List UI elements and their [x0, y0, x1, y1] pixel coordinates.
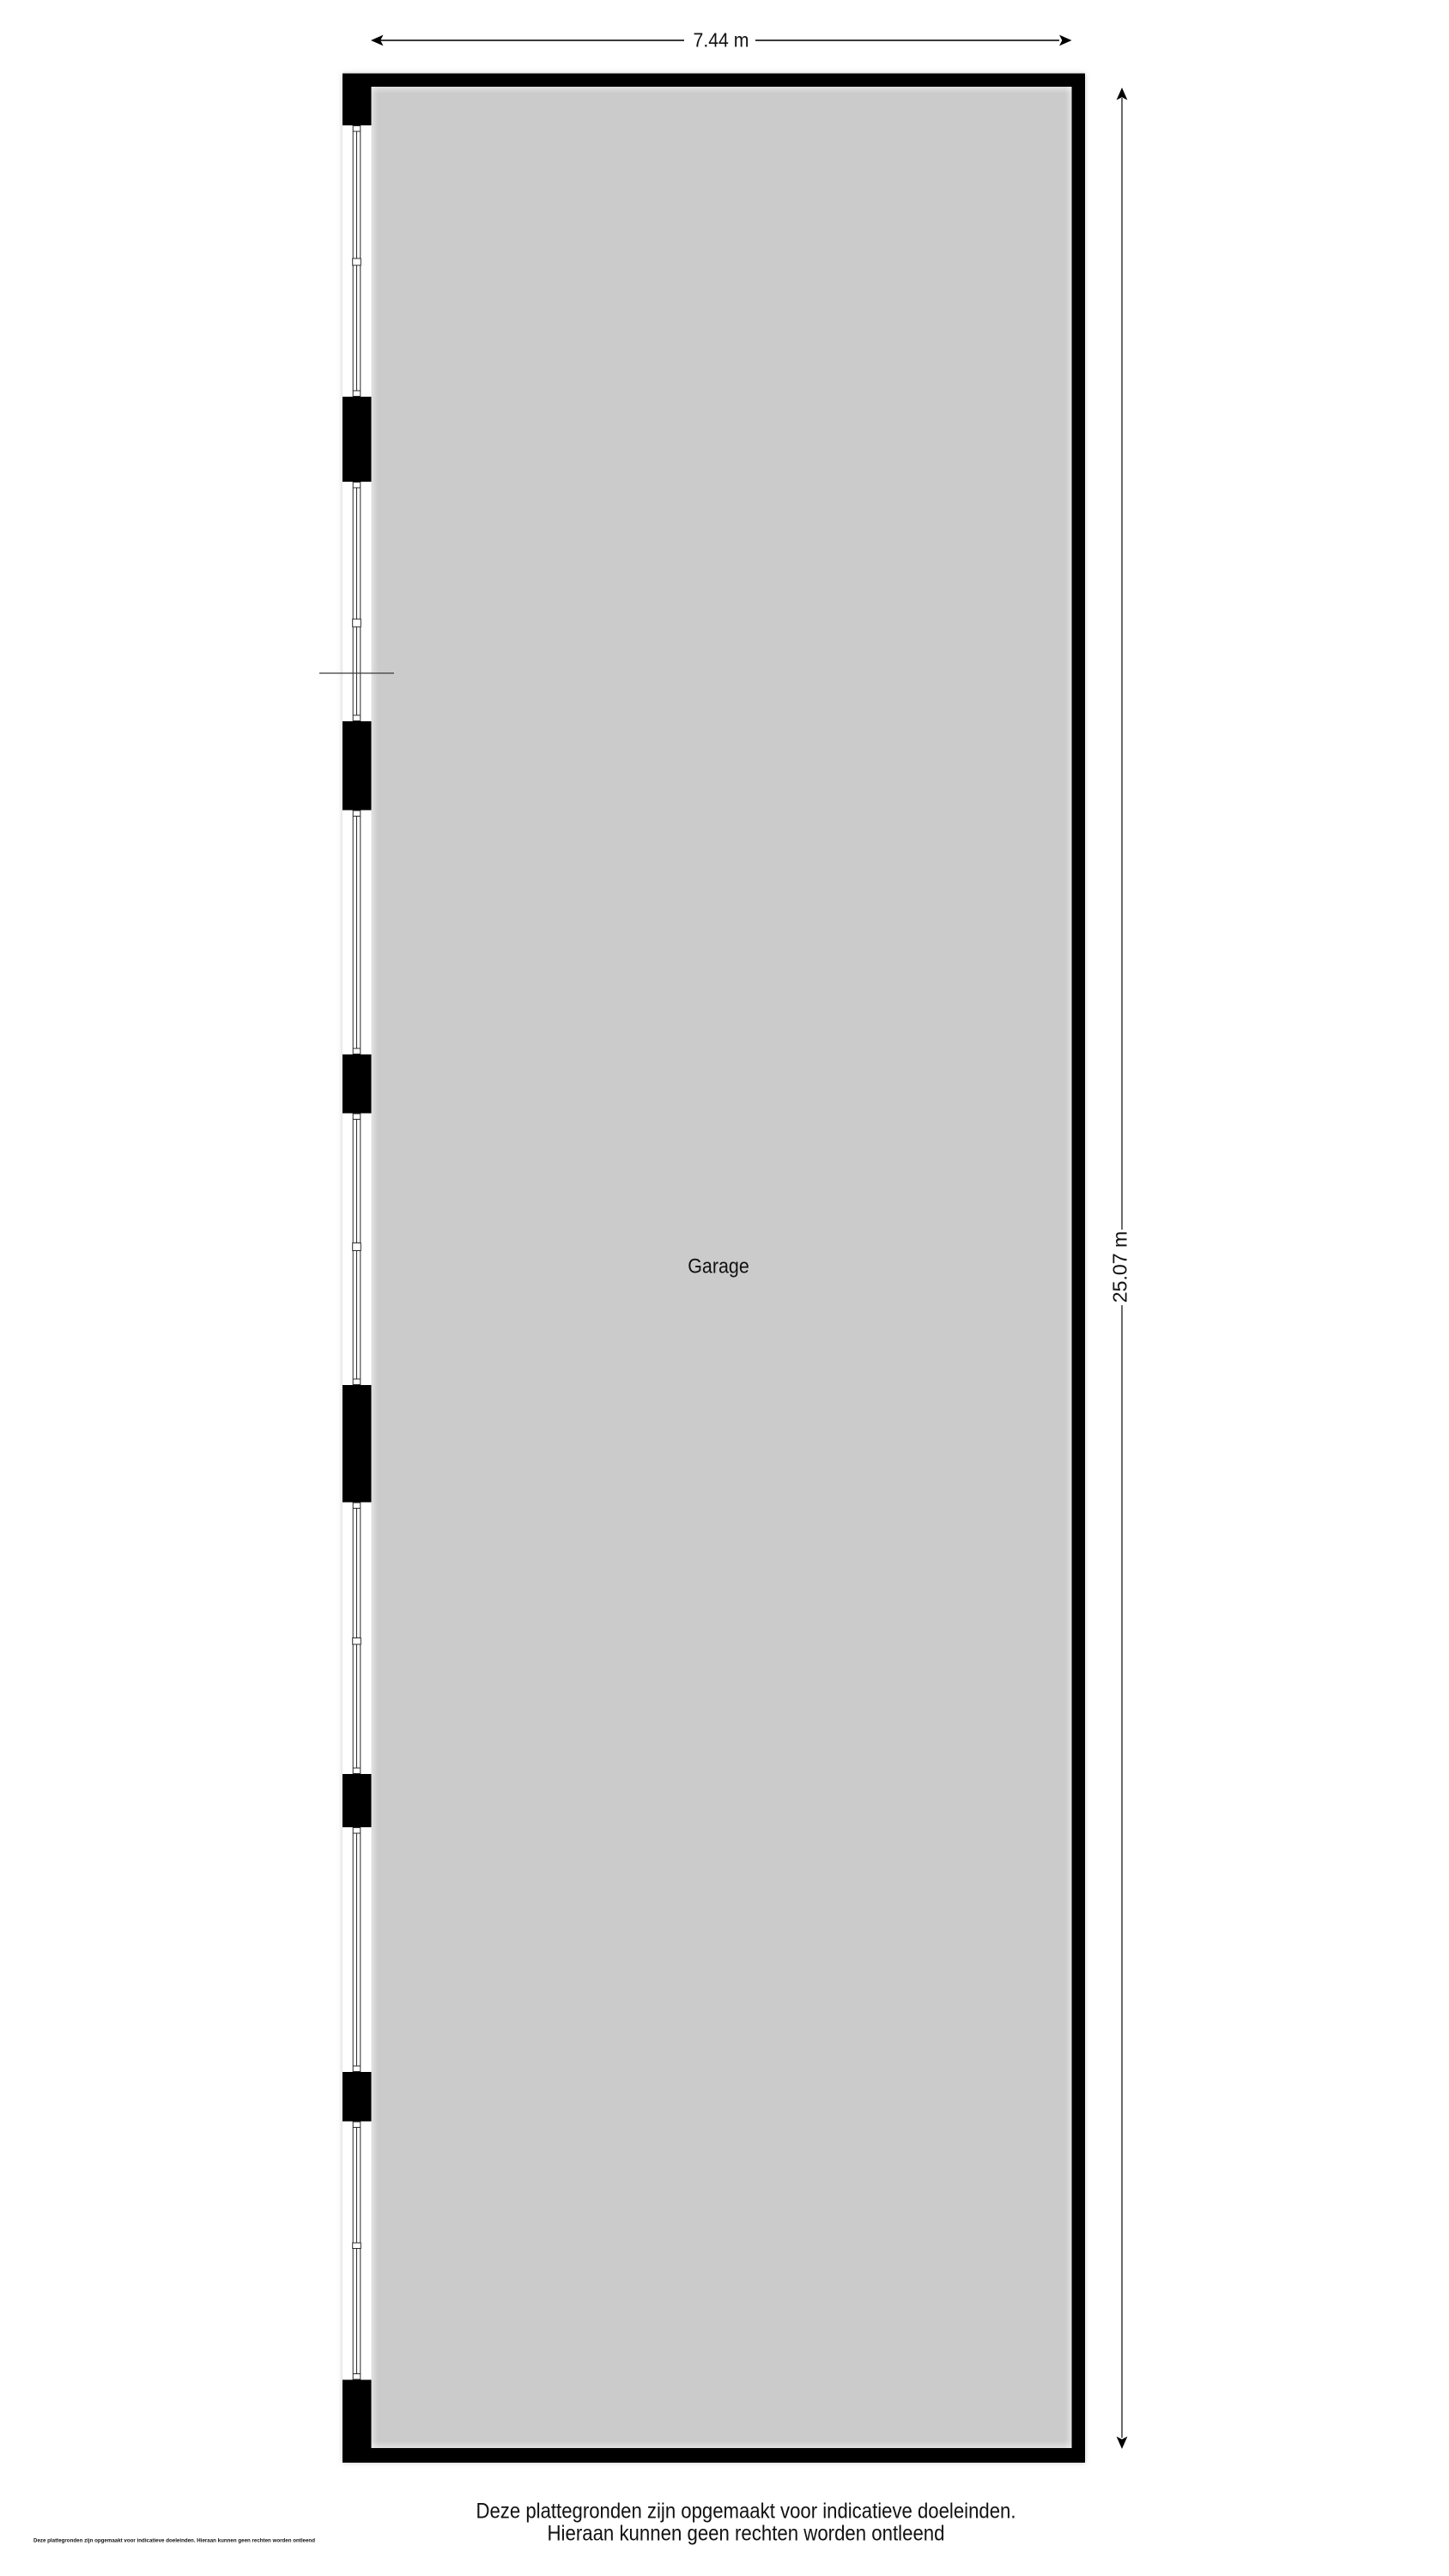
svg-text:Deze plattegronden zijn opgema: Deze plattegronden zijn opgemaakt voor i…	[476, 2500, 1016, 2524]
svg-text:25.07 m: 25.07 m	[1109, 1231, 1131, 1303]
svg-text:Garage: Garage	[688, 1255, 749, 1279]
svg-text:Hieraan kunnen geen rechten wo: Hieraan kunnen geen rechten worden ontle…	[548, 2522, 945, 2546]
svg-text:Deze plattegronden zijn opgema: Deze plattegronden zijn opgemaakt voor i…	[33, 2538, 315, 2544]
svg-text:7.44 m: 7.44 m	[694, 29, 749, 52]
